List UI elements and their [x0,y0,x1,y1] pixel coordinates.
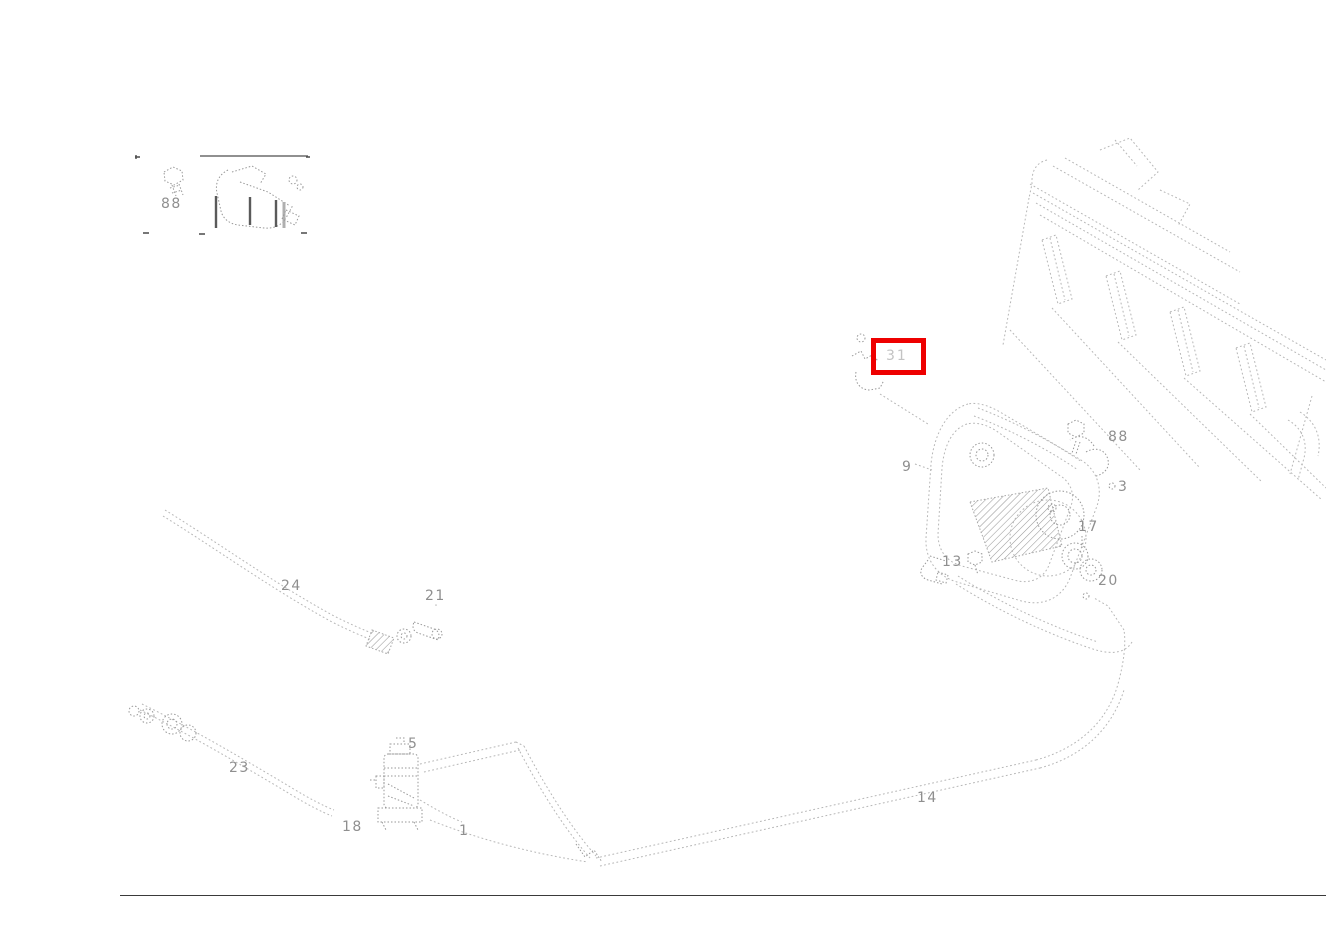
hose-14-drawing [430,593,1125,866]
part-label-14[interactable]: 14 [917,791,938,805]
part-label-24[interactable]: 24 [281,579,302,593]
part-label-31[interactable]: 31 [886,349,908,363]
bolt-icon [164,167,183,196]
pump-bracket-drawing [915,403,1132,652]
footer-rule [120,895,1326,896]
part-label-20[interactable]: 20 [1098,574,1119,588]
part-label-9[interactable]: 9 [902,460,912,474]
part-label-13[interactable]: 13 [942,555,963,569]
part-label-18[interactable]: 18 [342,820,363,834]
part-label-1[interactable]: 1 [459,824,469,838]
part-label-3[interactable]: 3 [1118,480,1128,494]
inset-part-drawing [216,166,303,228]
part-label-5[interactable]: 5 [408,737,418,751]
diagram-line-art [0,0,1326,937]
part-label-17[interactable]: 17 [1078,520,1099,534]
valve-drawing [370,738,596,858]
hose-24-drawing [163,510,442,654]
parts-diagram-page: { "highlight": { "color": "#ee0000", "se… [0,0,1326,937]
part-label-23[interactable]: 23 [229,761,250,775]
part-label-21[interactable]: 21 [425,589,446,603]
radiator-drawing [1003,138,1326,500]
part-label-88[interactable]: 88 [1108,430,1129,444]
legend-fastener-label[interactable]: 88 [161,197,182,211]
